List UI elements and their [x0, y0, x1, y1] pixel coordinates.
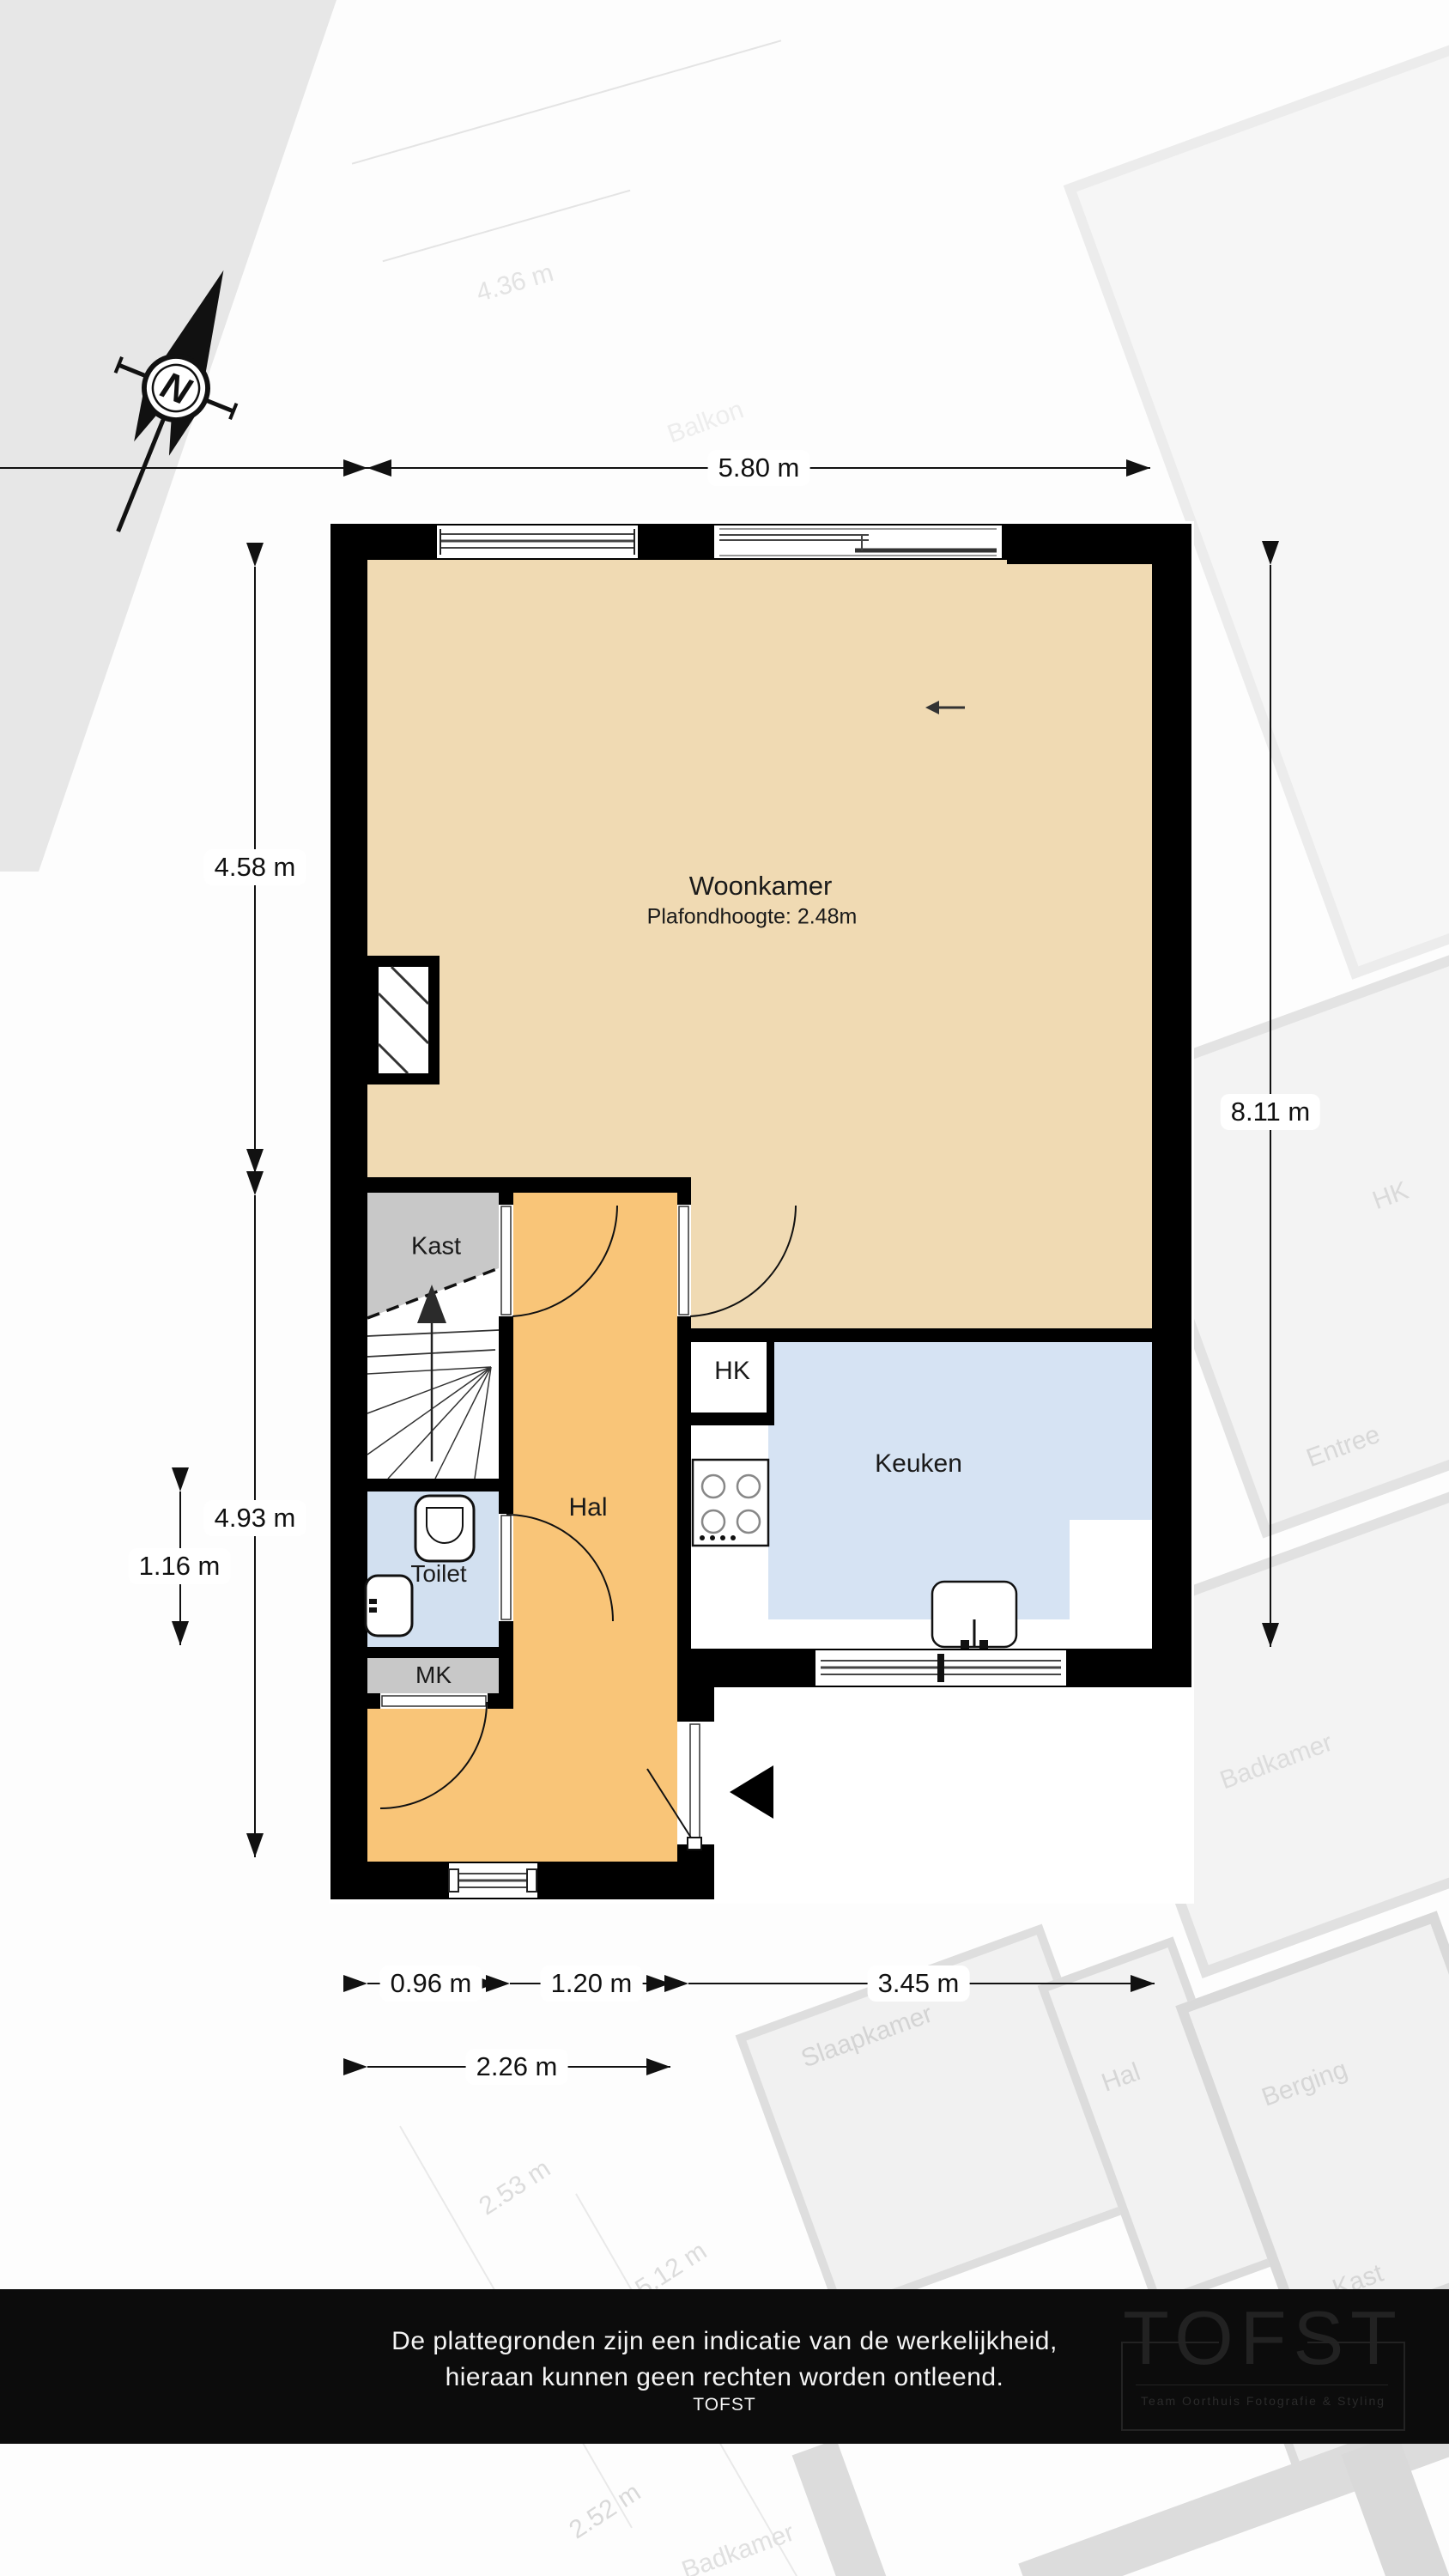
wall-mk-bottom [367, 1693, 499, 1709]
chimney-shaft [367, 956, 440, 1084]
wall-right [1152, 524, 1191, 1687]
tofst-logo-subtitle: Team Oorthuis Fotografie & Styling [1121, 2394, 1405, 2408]
tofst-logo-frame-left [1121, 2342, 1219, 2431]
background-dim-line [383, 190, 631, 263]
room-label-hk: HK [714, 1357, 750, 1386]
tofst-logo-divider [1136, 2385, 1388, 2385]
room-woonkamer [367, 560, 1152, 1177]
background-dim-line [352, 39, 781, 164]
wall-left [330, 524, 367, 1899]
dim-bottom-3: 3.45 m [868, 1965, 970, 2002]
dim-bottom-row2: 2.26 m [466, 2049, 568, 2085]
wall-hal-left [499, 1193, 513, 1709]
wall-keuken-top [677, 1328, 1152, 1342]
dim-bottom-1: 0.96 m [380, 1965, 482, 2002]
room-label-woonkamer: Woonkamer [689, 871, 833, 902]
floorplan-page: 4.36 m Balkon HK Entree Badkamer Slaapka… [0, 0, 1449, 2576]
room-label-keuken: Keuken [875, 1449, 962, 1479]
dim-bottom-2: 1.20 m [541, 1965, 643, 2002]
background-label: Balkon [664, 395, 748, 449]
room-label-kast: Kast [411, 1233, 461, 1261]
background-wall-band [792, 2439, 887, 2576]
room-label-mk: MK [415, 1662, 452, 1689]
dim-left-lower: 4.93 m [204, 1500, 306, 1536]
background-label: 4.36 m [473, 258, 557, 308]
dim-right: 8.11 m [1221, 1094, 1320, 1130]
tofst-logo-frame-right [1307, 2342, 1405, 2431]
dim-left-inner: 1.16 m [129, 1548, 231, 1584]
wall-hal-keuken [677, 1342, 691, 1649]
dim-top: 5.80 m [708, 450, 810, 486]
tofst-logo: TOFST Team Oorthuis Fotografie & Styling [1121, 2289, 1405, 2444]
room-sublabel-woonkamer: Plafondhoogte: 2.48m [647, 905, 858, 930]
background-label: 2.52 m [564, 2478, 646, 2545]
wall-woonkamer-hal [367, 1177, 691, 1193]
room-label-hal: Hal [568, 1493, 607, 1522]
wall-bottom [330, 1862, 714, 1899]
room-label-toilet: Toilet [410, 1560, 466, 1588]
room-woonkamer-lower [691, 1177, 1152, 1328]
wall-hk-right [767, 1342, 774, 1413]
wall-toilet-bottom [367, 1647, 499, 1658]
background-label: Badkamer [678, 2518, 798, 2576]
wall-hal-right [677, 1193, 691, 1328]
wall-keuken-bottom [714, 1649, 1191, 1687]
wall-hk-bottom [691, 1413, 774, 1425]
wall-toilet-top [367, 1479, 499, 1492]
tofst-logo-frame-bottom [1121, 2429, 1405, 2431]
background-label: 2.53 m [474, 2154, 555, 2221]
dim-left-upper: 4.58 m [204, 849, 306, 885]
